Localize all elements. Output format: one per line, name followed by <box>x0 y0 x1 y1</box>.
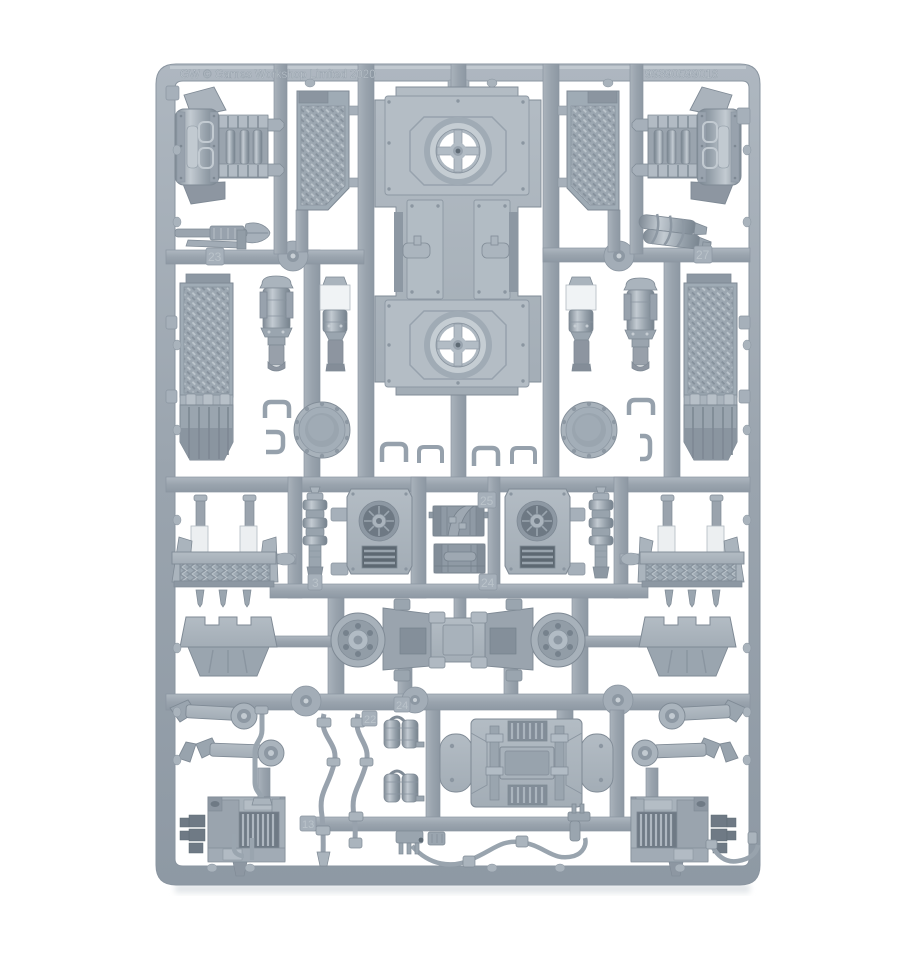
svg-text:27: 27 <box>696 248 710 262</box>
svg-text:22: 22 <box>364 714 376 726</box>
svg-text:GW © Games Workshop Limited 20: GW © Games Workshop Limited 2020 <box>180 69 376 81</box>
svg-text:24: 24 <box>481 576 495 590</box>
svg-text:25: 25 <box>480 494 494 508</box>
svg-text:24: 24 <box>396 700 408 712</box>
svg-text:3: 3 <box>312 576 319 590</box>
svg-text:13: 13 <box>302 819 314 831</box>
svg-text:23: 23 <box>208 250 222 264</box>
svg-text:99390599016: 99390599016 <box>645 67 719 81</box>
